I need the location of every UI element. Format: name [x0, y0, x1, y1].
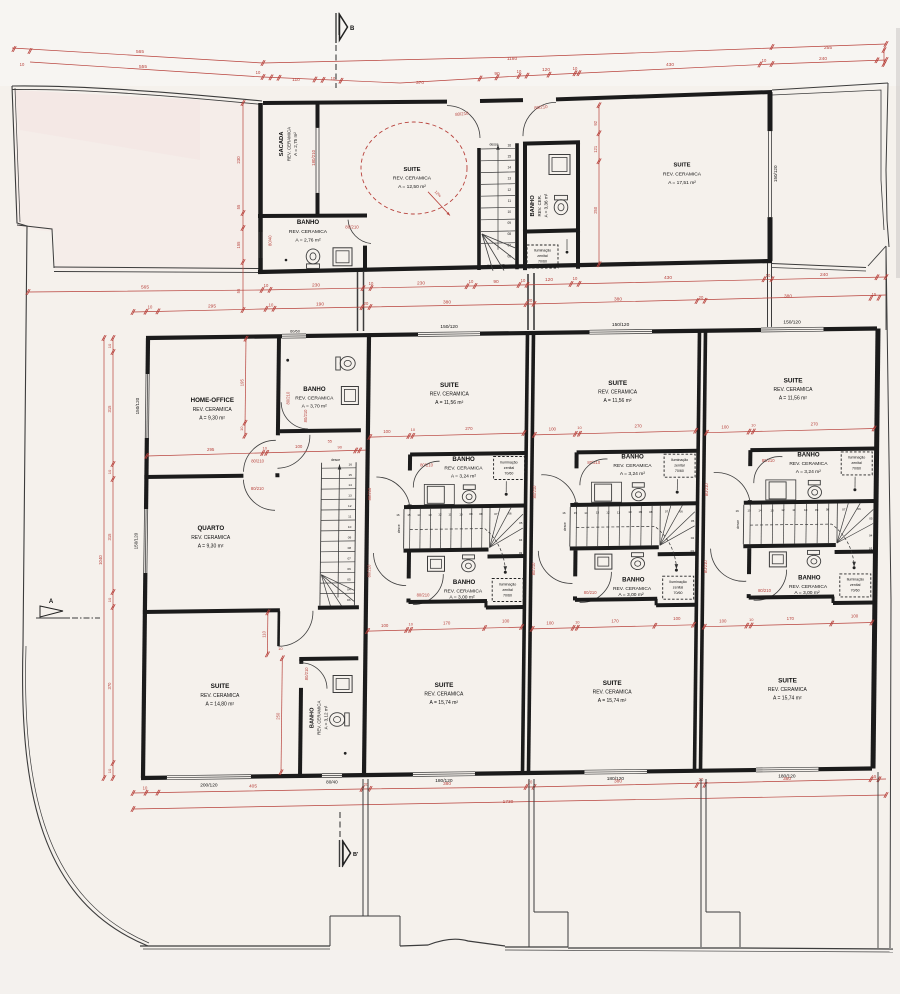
svg-text:03: 03: [519, 551, 523, 555]
svg-text:10: 10: [521, 278, 526, 283]
svg-text:270: 270: [811, 421, 819, 426]
svg-text:10: 10: [256, 70, 261, 75]
svg-text:70/60: 70/60: [852, 467, 861, 471]
svg-text:170: 170: [611, 618, 619, 623]
svg-text:10: 10: [107, 768, 112, 773]
svg-text:zenital: zenital: [674, 464, 685, 468]
svg-text:SUITE: SUITE: [778, 678, 798, 685]
svg-text:430: 430: [666, 62, 674, 68]
svg-text:10: 10: [278, 646, 283, 651]
svg-text:zenital: zenital: [537, 254, 548, 258]
svg-text:04: 04: [869, 534, 873, 538]
svg-text:15: 15: [348, 473, 352, 477]
svg-text:REV. CERAMICA: REV. CERAMICA: [430, 392, 470, 398]
svg-text:150/120: 150/120: [134, 532, 139, 549]
svg-text:70/60: 70/60: [538, 260, 547, 264]
svg-text:405: 405: [249, 784, 257, 790]
svg-text:10: 10: [573, 276, 578, 281]
svg-text:315: 315: [107, 533, 112, 541]
svg-text:80/210: 80/210: [532, 485, 537, 498]
svg-text:100: 100: [719, 619, 727, 624]
svg-text:REV. CERAMICA: REV. CERAMICA: [444, 588, 483, 594]
svg-text:A = 3,00 m²: A = 3,00 m²: [794, 590, 820, 596]
svg-text:Iluminação: Iluminação: [500, 460, 517, 464]
svg-text:195: 195: [240, 379, 245, 387]
svg-text:80/210: 80/210: [703, 560, 708, 573]
svg-text:A = 3,24 m²: A = 3,24 m²: [451, 473, 477, 479]
svg-text:370: 370: [107, 682, 112, 690]
svg-text:10: 10: [369, 281, 374, 286]
svg-text:06: 06: [680, 510, 684, 514]
svg-text:16: 16: [349, 462, 353, 466]
svg-text:120: 120: [545, 277, 553, 283]
svg-text:BANHO: BANHO: [797, 451, 820, 458]
svg-text:A = 3,70 m²: A = 3,70 m²: [302, 403, 328, 409]
svg-text:A = 2,75 m²: A = 2,75 m²: [293, 132, 298, 156]
svg-text:A = 11,56 m²: A = 11,56 m²: [779, 396, 807, 402]
svg-text:REV. CERAMICA: REV. CERAMICA: [295, 395, 334, 401]
svg-text:110: 110: [262, 630, 267, 637]
svg-text:11: 11: [792, 508, 795, 512]
svg-text:100: 100: [851, 614, 859, 619]
svg-text:zenital: zenital: [504, 466, 515, 470]
svg-text:10: 10: [573, 66, 578, 71]
svg-text:REV. CER.: REV. CER.: [537, 195, 542, 217]
svg-text:BANHO: BANHO: [798, 574, 821, 581]
svg-text:80/210: 80/210: [366, 564, 371, 577]
svg-text:1730: 1730: [503, 799, 514, 805]
svg-text:10: 10: [20, 62, 25, 67]
svg-text:10: 10: [107, 343, 112, 348]
svg-text:565: 565: [136, 49, 144, 55]
svg-text:80/210: 80/210: [531, 562, 536, 575]
svg-text:295: 295: [208, 304, 216, 310]
svg-text:REV. CERAMICA: REV. CERAMICA: [663, 172, 702, 178]
svg-text:15: 15: [407, 513, 411, 517]
svg-text:100: 100: [546, 621, 554, 626]
svg-text:80/210: 80/210: [251, 486, 264, 491]
svg-text:A = 9,30 m²: A = 9,30 m²: [199, 416, 225, 422]
svg-text:03: 03: [691, 549, 695, 553]
svg-text:A = 15,74 m²: A = 15,74 m²: [430, 700, 459, 706]
svg-text:10: 10: [262, 445, 267, 450]
svg-text:10: 10: [148, 305, 153, 310]
svg-text:10: 10: [575, 619, 580, 624]
svg-text:08: 08: [507, 232, 511, 236]
svg-text:100: 100: [549, 427, 557, 432]
svg-text:250: 250: [276, 712, 281, 720]
svg-text:150/120: 150/120: [783, 320, 801, 326]
svg-text:A = 15,74 m²: A = 15,74 m²: [773, 696, 802, 702]
svg-text:15: 15: [574, 511, 578, 515]
svg-text:13: 13: [596, 511, 600, 515]
svg-text:380: 380: [783, 776, 791, 782]
svg-text:92: 92: [593, 120, 598, 125]
svg-text:desce: desce: [331, 458, 340, 462]
svg-text:100: 100: [295, 444, 303, 449]
svg-text:230: 230: [312, 283, 320, 289]
svg-text:80/210: 80/210: [417, 592, 430, 597]
svg-text:380: 380: [784, 294, 792, 300]
svg-text:REV. CERAMICA: REV. CERAMICA: [444, 465, 483, 471]
svg-text:10: 10: [577, 425, 582, 430]
svg-text:380: 380: [443, 300, 451, 306]
svg-text:16: 16: [736, 509, 740, 513]
svg-text:20: 20: [528, 780, 533, 785]
svg-text:20: 20: [364, 301, 369, 306]
svg-text:230: 230: [417, 281, 425, 287]
svg-text:200/120: 200/120: [200, 783, 218, 789]
svg-text:10: 10: [517, 69, 522, 74]
svg-text:SUITE: SUITE: [673, 163, 690, 169]
svg-text:11: 11: [508, 199, 512, 203]
svg-text:80/40: 80/40: [326, 780, 338, 785]
svg-text:380: 380: [614, 297, 622, 303]
svg-text:03: 03: [347, 598, 351, 602]
svg-text:55: 55: [236, 288, 241, 293]
svg-text:11: 11: [348, 515, 351, 519]
svg-text:SUITE: SUITE: [603, 680, 623, 687]
svg-text:09: 09: [815, 508, 819, 512]
svg-text:Iluminação: Iluminação: [848, 456, 865, 460]
svg-text:380: 380: [443, 781, 451, 787]
svg-text:REV. CERAMICA: REV. CERAMICA: [317, 701, 322, 735]
svg-text:100: 100: [673, 616, 681, 621]
svg-text:12: 12: [438, 513, 442, 517]
svg-text:10: 10: [469, 279, 474, 284]
svg-text:07: 07: [842, 507, 846, 511]
svg-text:A: A: [49, 599, 54, 605]
svg-text:13: 13: [507, 177, 511, 181]
svg-text:250: 250: [593, 206, 598, 214]
svg-text:desce: desce: [736, 520, 740, 529]
svg-text:10: 10: [408, 622, 413, 627]
svg-text:08: 08: [479, 512, 483, 516]
svg-text:REV. CERAMICA: REV. CERAMICA: [193, 407, 233, 413]
svg-text:zenital: zenital: [851, 461, 862, 465]
svg-text:15: 15: [872, 774, 877, 779]
svg-text:A = 3,24 m²: A = 3,24 m²: [796, 469, 822, 475]
svg-text:15: 15: [747, 509, 751, 513]
svg-text:70/60: 70/60: [675, 469, 684, 473]
svg-text:370: 370: [416, 80, 424, 86]
svg-text:16: 16: [396, 513, 400, 517]
svg-text:16: 16: [507, 143, 511, 147]
svg-text:B: B: [350, 26, 355, 32]
svg-text:240: 240: [819, 56, 827, 62]
svg-text:315: 315: [107, 405, 112, 413]
svg-text:REV. CERAMICA: REV. CERAMICA: [287, 127, 292, 161]
svg-text:255: 255: [824, 45, 832, 51]
svg-text:10: 10: [459, 512, 463, 516]
svg-text:A = 9,30 m²: A = 9,30 m²: [198, 544, 224, 550]
svg-text:SUITE: SUITE: [608, 380, 628, 387]
svg-text:270: 270: [635, 424, 643, 429]
svg-text:REV. CERAMICA: REV. CERAMICA: [613, 463, 652, 469]
svg-text:10: 10: [264, 283, 269, 288]
svg-text:150/120: 150/120: [135, 397, 140, 414]
svg-text:A = 11,56 m²: A = 11,56 m²: [435, 400, 463, 406]
svg-text:100: 100: [721, 425, 729, 430]
svg-text:1180: 1180: [507, 56, 518, 62]
svg-text:70/60: 70/60: [504, 471, 513, 475]
svg-text:10: 10: [269, 303, 274, 308]
svg-text:08: 08: [649, 510, 653, 514]
svg-text:16: 16: [562, 511, 566, 515]
svg-text:07: 07: [494, 512, 498, 516]
svg-text:BANHO: BANHO: [621, 454, 644, 461]
svg-text:11: 11: [448, 513, 451, 517]
svg-text:100: 100: [381, 623, 389, 628]
svg-text:14: 14: [758, 509, 762, 513]
svg-text:BANHO: BANHO: [530, 195, 536, 217]
svg-text:REV. CERAMICA: REV. CERAMICA: [200, 693, 240, 699]
svg-text:80/210: 80/210: [367, 487, 372, 500]
svg-text:180/210: 180/210: [311, 149, 316, 165]
svg-text:BANHO: BANHO: [303, 386, 326, 393]
svg-text:380: 380: [614, 779, 622, 785]
svg-text:REV. CERAMICA: REV. CERAMICA: [789, 584, 828, 590]
svg-text:150/120: 150/120: [440, 324, 458, 330]
svg-text:150/120: 150/120: [612, 322, 630, 328]
svg-text:10: 10: [749, 617, 754, 622]
svg-text:A = 11,56 m²: A = 11,56 m²: [603, 398, 631, 404]
svg-text:10: 10: [107, 469, 112, 474]
svg-text:10: 10: [507, 210, 511, 214]
svg-text:10: 10: [107, 597, 112, 602]
svg-text:110: 110: [292, 77, 300, 83]
svg-text:REV. CERAMICA: REV. CERAMICA: [593, 689, 633, 695]
svg-text:10: 10: [804, 508, 808, 512]
svg-text:A = 14,80 m²: A = 14,80 m²: [206, 702, 235, 708]
svg-text:Iluminação: Iluminação: [847, 578, 864, 582]
svg-text:QUARTO: QUARTO: [197, 525, 224, 532]
svg-text:REV. CERAMICA: REV. CERAMICA: [774, 387, 814, 393]
svg-text:10: 10: [348, 525, 352, 529]
svg-text:BANHO: BANHO: [297, 219, 320, 226]
svg-text:REV. CERAMICA: REV. CERAMICA: [598, 389, 638, 395]
svg-text:240: 240: [820, 272, 828, 278]
svg-text:A = 17,51 m²: A = 17,51 m²: [668, 180, 696, 186]
svg-text:10: 10: [143, 786, 148, 791]
svg-text:70/60: 70/60: [851, 589, 860, 593]
svg-text:12: 12: [348, 504, 352, 508]
svg-text:09: 09: [639, 510, 643, 514]
svg-text:80/210: 80/210: [758, 588, 771, 593]
svg-text:desce: desce: [397, 524, 401, 533]
svg-text:13: 13: [770, 508, 774, 512]
svg-text:1040: 1040: [98, 555, 103, 565]
svg-text:05: 05: [519, 521, 523, 525]
svg-text:REV. CERAMICA: REV. CERAMICA: [289, 229, 328, 235]
svg-text:05: 05: [347, 577, 351, 581]
svg-text:06: 06: [508, 512, 512, 516]
svg-text:SUITE: SUITE: [784, 378, 804, 385]
svg-text:170: 170: [787, 616, 795, 621]
svg-text:565: 565: [141, 285, 149, 291]
svg-text:05: 05: [869, 517, 873, 521]
svg-text:150/120: 150/120: [773, 165, 778, 182]
svg-text:08: 08: [826, 508, 830, 512]
svg-text:A = 3,24 m²: A = 3,24 m²: [620, 471, 646, 477]
svg-text:555: 555: [139, 64, 147, 70]
svg-text:12: 12: [606, 511, 610, 515]
svg-text:zenital: zenital: [502, 588, 513, 592]
svg-text:80/210: 80/210: [285, 391, 290, 404]
svg-text:270: 270: [465, 426, 473, 431]
svg-text:230: 230: [236, 156, 241, 164]
svg-text:55: 55: [236, 204, 241, 209]
svg-text:SUITE: SUITE: [403, 167, 420, 173]
svg-text:12: 12: [781, 508, 785, 512]
svg-text:15: 15: [872, 292, 877, 297]
svg-text:06: 06: [857, 507, 861, 511]
svg-text:14: 14: [584, 511, 588, 515]
svg-text:04: 04: [487, 264, 491, 268]
svg-text:zenital: zenital: [673, 586, 684, 590]
svg-text:A = 3,00 m²: A = 3,00 m²: [618, 592, 644, 598]
svg-text:SUITE: SUITE: [440, 382, 460, 389]
svg-text:03: 03: [869, 547, 873, 551]
svg-text:100: 100: [502, 618, 510, 623]
svg-text:11: 11: [617, 510, 620, 514]
svg-text:10: 10: [751, 423, 756, 428]
svg-text:A = 12,50 m²: A = 12,50 m²: [398, 184, 426, 190]
svg-text:Iluminação: Iluminação: [671, 458, 688, 462]
svg-text:170: 170: [443, 621, 451, 626]
svg-text:A = 3,12 m²: A = 3,12 m²: [324, 705, 329, 729]
svg-text:07: 07: [347, 556, 351, 560]
svg-text:09: 09: [507, 221, 511, 225]
svg-text:13: 13: [348, 494, 352, 498]
svg-text:BANHO: BANHO: [310, 707, 316, 728]
svg-text:14: 14: [417, 513, 421, 517]
svg-text:14: 14: [348, 483, 352, 487]
svg-text:desce: desce: [489, 143, 498, 147]
svg-text:120: 120: [542, 67, 550, 73]
svg-text:desce: desce: [563, 522, 567, 531]
svg-text:Iluminação: Iluminação: [534, 249, 551, 253]
svg-text:295: 295: [207, 447, 215, 452]
svg-text:70/60: 70/60: [674, 591, 683, 595]
svg-text:430: 430: [664, 275, 672, 281]
svg-text:90: 90: [494, 71, 500, 77]
svg-text:06: 06: [347, 567, 351, 571]
svg-text:REV. CERAMICA: REV. CERAMICA: [789, 461, 828, 467]
svg-text:08: 08: [348, 546, 352, 550]
svg-text:60/60: 60/60: [290, 329, 301, 334]
svg-text:B': B': [353, 852, 359, 858]
svg-text:A = 2,76 m²: A = 2,76 m²: [295, 237, 321, 243]
svg-text:REV. CERAMICA: REV. CERAMICA: [768, 687, 808, 693]
svg-text:BANHO: BANHO: [622, 577, 645, 584]
svg-text:Iluminação: Iluminação: [669, 580, 686, 584]
svg-text:90: 90: [493, 279, 499, 285]
svg-text:155: 155: [236, 241, 241, 249]
svg-text:04: 04: [691, 536, 695, 540]
svg-text:20: 20: [699, 295, 704, 300]
svg-text:80/210: 80/210: [420, 462, 433, 467]
svg-text:REV. CERAMICA: REV. CERAMICA: [613, 586, 652, 592]
svg-text:80/210: 80/210: [345, 225, 359, 230]
svg-text:190: 190: [316, 302, 324, 308]
svg-text:10: 10: [762, 58, 767, 63]
svg-text:70/60: 70/60: [503, 593, 512, 597]
svg-text:20: 20: [528, 298, 533, 303]
svg-text:SACADA: SACADA: [279, 131, 285, 157]
svg-text:REV. CERAMICA: REV. CERAMICA: [424, 692, 464, 698]
svg-text:SUITE: SUITE: [211, 683, 231, 690]
svg-text:13: 13: [428, 513, 432, 517]
svg-text:05: 05: [691, 519, 695, 523]
svg-text:80/210: 80/210: [303, 409, 308, 422]
svg-text:Iluminação: Iluminação: [499, 582, 516, 586]
svg-text:55: 55: [328, 439, 333, 444]
svg-text:A = 3,00 m²: A = 3,00 m²: [449, 594, 475, 600]
svg-text:14: 14: [507, 166, 511, 170]
svg-text:80/210: 80/210: [304, 667, 309, 680]
svg-text:10: 10: [331, 76, 336, 81]
svg-text:15: 15: [507, 155, 511, 159]
svg-text:HOME-OFFICE: HOME-OFFICE: [191, 397, 234, 404]
svg-text:12: 12: [507, 188, 511, 192]
svg-text:zenital: zenital: [850, 583, 861, 587]
svg-text:04: 04: [519, 538, 523, 542]
svg-text:09: 09: [469, 512, 473, 516]
svg-text:05: 05: [501, 264, 505, 268]
svg-text:10: 10: [766, 273, 771, 278]
svg-text:10: 10: [239, 426, 244, 431]
svg-text:REV. CERAMICA: REV. CERAMICA: [191, 535, 231, 541]
svg-text:10: 10: [628, 510, 632, 514]
svg-text:SUITE: SUITE: [435, 682, 455, 689]
svg-text:10: 10: [411, 427, 416, 432]
svg-text:80/210: 80/210: [704, 483, 709, 496]
svg-text:A = 3,36 m²: A = 3,36 m²: [544, 193, 549, 217]
svg-text:BANHO: BANHO: [452, 456, 475, 463]
svg-text:80/210: 80/210: [251, 459, 264, 464]
svg-text:REV. CERAMICA: REV. CERAMICA: [393, 176, 432, 182]
svg-text:121: 121: [593, 145, 598, 153]
svg-text:A = 15,74 m²: A = 15,74 m²: [598, 698, 627, 704]
svg-text:09: 09: [348, 536, 352, 540]
svg-text:100: 100: [383, 429, 391, 434]
svg-text:80/40: 80/40: [267, 235, 272, 246]
svg-text:BANHO: BANHO: [453, 579, 476, 586]
svg-text:80/210: 80/210: [584, 590, 597, 595]
svg-text:07: 07: [665, 510, 669, 514]
svg-text:90: 90: [337, 445, 342, 450]
